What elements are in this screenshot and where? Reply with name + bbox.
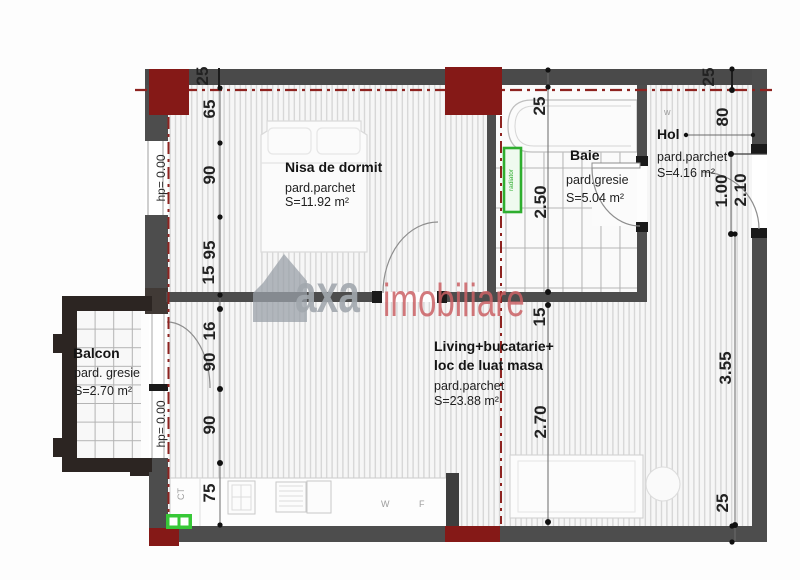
svg-text:Living+bucatarie+: Living+bucatarie+ <box>434 338 554 354</box>
svg-text:2.70: 2.70 <box>531 405 550 438</box>
svg-text:Balcon: Balcon <box>73 345 120 361</box>
svg-text:pard. gresie: pard. gresie <box>74 366 140 380</box>
svg-text:pard.parchet: pard.parchet <box>434 379 505 393</box>
svg-text:S=2.70 m²: S=2.70 m² <box>74 384 132 398</box>
svg-text:90: 90 <box>200 166 219 185</box>
svg-text:w: w <box>663 107 671 117</box>
svg-text:hp= 0.00: hp= 0.00 <box>154 154 168 201</box>
svg-text:16: 16 <box>200 322 219 341</box>
svg-text:2.50: 2.50 <box>531 185 550 218</box>
svg-text:S=4.16 m²: S=4.16 m² <box>657 166 715 180</box>
svg-text:imobiliare: imobiliare <box>383 276 525 326</box>
svg-text:65: 65 <box>200 100 219 119</box>
svg-text:15: 15 <box>530 308 549 327</box>
svg-text:hp= 0.00: hp= 0.00 <box>154 400 168 447</box>
svg-text:Nisa de dormit: Nisa de dormit <box>285 159 383 175</box>
svg-text:2.10: 2.10 <box>731 173 750 206</box>
svg-text:CT: CT <box>176 488 186 500</box>
svg-text:15: 15 <box>199 266 218 285</box>
svg-text:S=11.92 m²: S=11.92 m² <box>285 195 349 209</box>
svg-text:25: 25 <box>713 494 732 513</box>
svg-text:pard.parchet: pard.parchet <box>285 181 356 195</box>
svg-text:90: 90 <box>200 353 219 372</box>
svg-text:loc de luat masa: loc de luat masa <box>434 357 543 373</box>
svg-text:25: 25 <box>530 97 549 116</box>
svg-text:Baie: Baie <box>570 147 600 163</box>
svg-text:radiator: radiator <box>508 168 515 191</box>
svg-text:80: 80 <box>713 108 732 127</box>
svg-text:Hol: Hol <box>657 126 680 142</box>
svg-text:pard.parchet: pard.parchet <box>657 150 728 164</box>
svg-text:pard.gresie: pard.gresie <box>566 173 629 187</box>
svg-text:25: 25 <box>699 68 718 87</box>
svg-text:axa: axa <box>295 263 361 324</box>
svg-text:S=23.88 m²: S=23.88 m² <box>434 394 499 408</box>
svg-text:F: F <box>419 499 425 509</box>
svg-text:75: 75 <box>200 484 219 503</box>
svg-text:90: 90 <box>200 416 219 435</box>
svg-text:95: 95 <box>200 241 219 260</box>
svg-text:25: 25 <box>193 67 212 86</box>
svg-text:W: W <box>381 499 390 509</box>
svg-text:S=5.04 m²: S=5.04 m² <box>566 191 624 205</box>
svg-text:3.55: 3.55 <box>716 351 735 384</box>
